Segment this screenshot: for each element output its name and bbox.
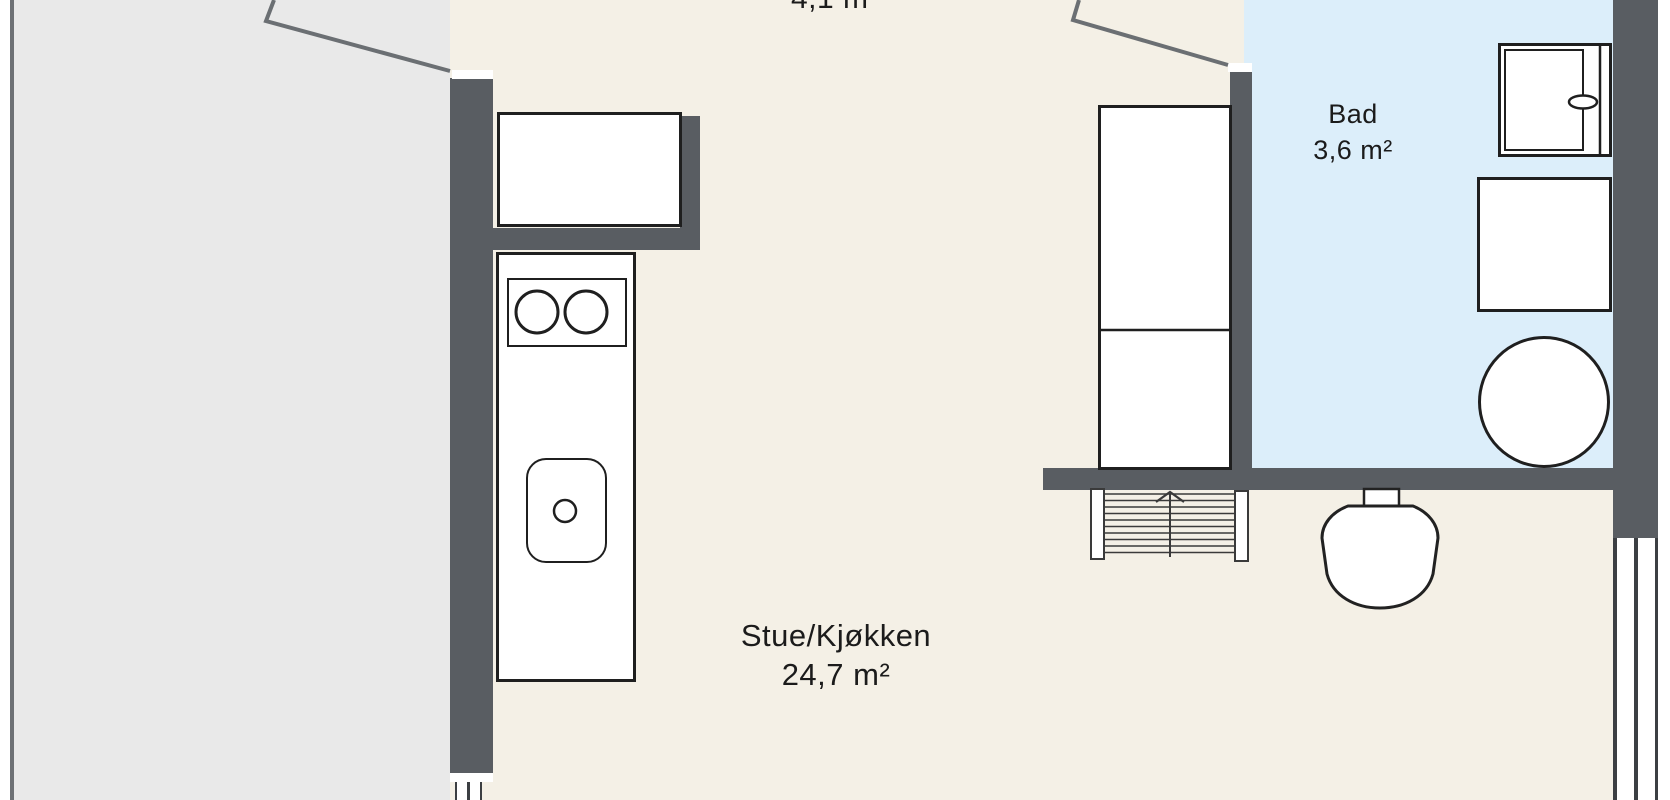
window-right-line-mid bbox=[1634, 538, 1638, 800]
wardrobe-icon bbox=[1098, 105, 1232, 470]
window-right-line-inner bbox=[1655, 538, 1658, 800]
window-right-line-outer bbox=[1613, 538, 1617, 800]
kitchen-sink-icon bbox=[526, 458, 607, 563]
living-name-text: Stue/Kjøkken bbox=[686, 616, 986, 655]
bathroom-name-text: Bad bbox=[1253, 96, 1453, 132]
balcony-floor bbox=[12, 0, 450, 800]
hall-area-text: 4,1 m² bbox=[735, 0, 935, 14]
living-room-label: Stue/Kjøkken 24,7 m² bbox=[686, 616, 986, 694]
balcony-door-threshold bbox=[452, 70, 493, 79]
window-bottom-left-icon bbox=[455, 782, 482, 800]
window-bottom-sill bbox=[450, 773, 493, 782]
round-basin-icon bbox=[1478, 336, 1610, 468]
wall-bathroom-bottom bbox=[1043, 468, 1613, 490]
hall-area-label: 4,1 m² bbox=[735, 0, 935, 18]
wall-right bbox=[1613, 0, 1658, 538]
balcony-edge-line bbox=[10, 0, 14, 800]
window-right-icon bbox=[1613, 538, 1658, 800]
window-bottom-left-mullion bbox=[467, 782, 470, 800]
wall-kitchen-nook-horizontal bbox=[493, 228, 700, 250]
bathroom-area-text: 3,6 m² bbox=[1253, 132, 1453, 168]
washing-machine-icon bbox=[1477, 177, 1612, 312]
shower-cabinet-inner bbox=[1504, 49, 1584, 151]
wall-bathroom-left bbox=[1230, 72, 1252, 488]
wall-kitchen-left bbox=[450, 78, 493, 773]
living-area-text: 24,7 m² bbox=[686, 655, 986, 694]
bathroom-label: Bad 3,6 m² bbox=[1253, 96, 1453, 168]
bathroom-door-threshold bbox=[1228, 63, 1252, 72]
cooktop-icon bbox=[507, 278, 627, 347]
kitchen-upper-cabinet-icon bbox=[497, 112, 682, 227]
floorplan-canvas: 4,1 m² Bad 3,6 m² Stue/Kjøkken 24,7 m² bbox=[0, 0, 1670, 800]
